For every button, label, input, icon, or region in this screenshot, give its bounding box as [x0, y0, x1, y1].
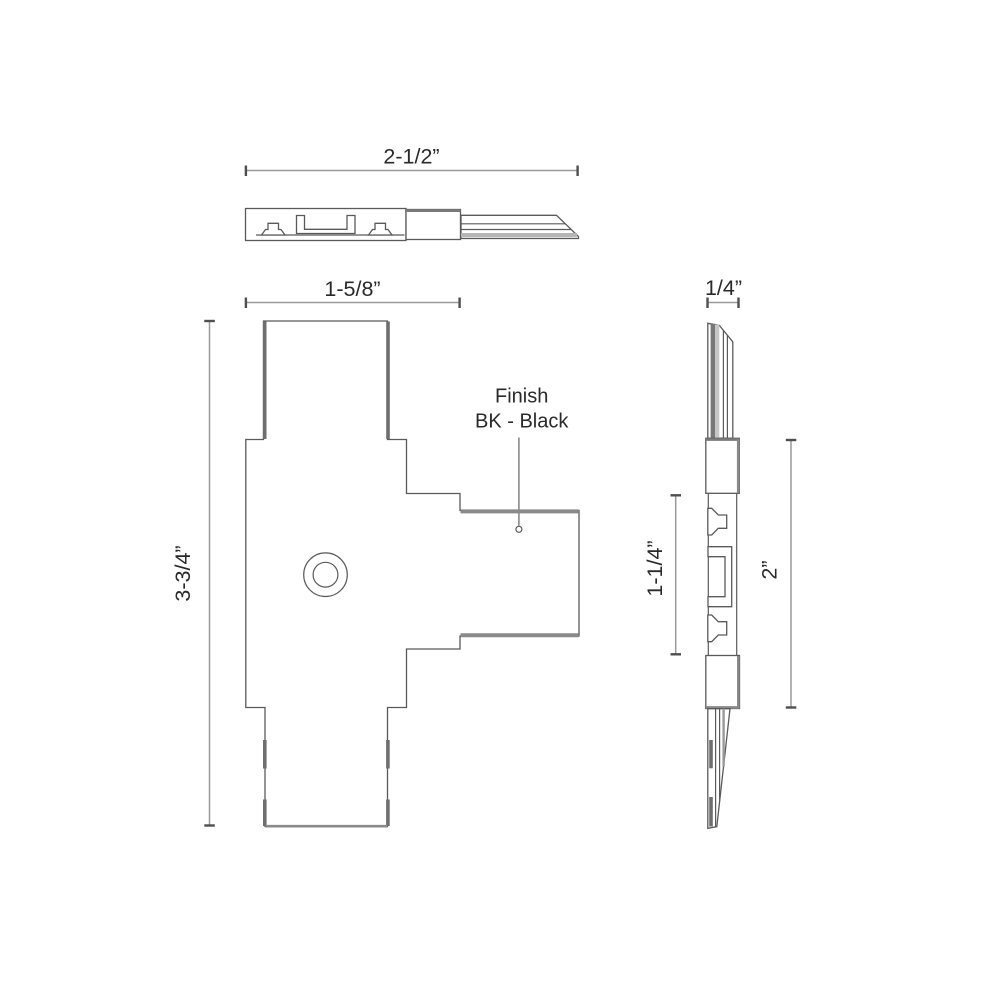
finish-note-line2: BK - Black	[475, 411, 569, 433]
dim-tick-bottom	[204, 824, 215, 826]
dim-front-height-label: 3-3/4”	[171, 545, 195, 601]
dim-tick-bottom	[786, 706, 797, 708]
top-view: 2-1/2”	[245, 145, 579, 241]
side-top-clip	[708, 508, 727, 535]
top-view-connector-block	[406, 210, 461, 240]
side-top-blade-dark-stripe	[711, 324, 715, 438]
side-channel	[708, 547, 732, 607]
drawing-canvas: 2-1/2” 1-5/8” 3-3/4”	[0, 0, 1000, 1000]
finish-note-line1: Finish	[495, 386, 548, 408]
dim-tick-top	[204, 320, 215, 322]
dim-top-width-label: 2-1/2”	[383, 145, 439, 169]
side-top-blade-light-stripe	[715, 325, 719, 439]
dim-front-height: 3-3/4”	[171, 320, 215, 827]
side-lower-block	[706, 656, 740, 709]
dim-side-inner-height: 1-1/4”	[643, 494, 681, 655]
dim-side-thickness: 1/4”	[705, 276, 742, 308]
leader-dot	[516, 526, 522, 532]
top-view-blade-band	[461, 233, 577, 237]
dim-tick-right	[576, 166, 578, 177]
side-upper-block	[706, 438, 740, 493]
dim-front-width-label: 1-5/8”	[324, 277, 380, 301]
dim-tick-left	[245, 298, 247, 309]
technical-drawing: 2-1/2” 1-5/8” 3-3/4”	[0, 0, 1000, 1000]
dim-tick-bottom	[671, 653, 682, 655]
side-view: 1/4” 1-1/4”	[643, 276, 796, 828]
dim-side-height-label: 2”	[758, 560, 782, 579]
dim-tick-right	[458, 298, 460, 309]
dim-tick-left	[245, 166, 247, 177]
dim-side-thickness-label: 1/4”	[705, 276, 742, 300]
dim-tick-top	[786, 439, 797, 441]
dim-side-height: 2”	[758, 439, 797, 709]
dim-front-width: 1-5/8”	[245, 277, 461, 308]
dim-side-inner-height-label: 1-1/4”	[643, 540, 667, 596]
side-bottom-clip	[708, 615, 727, 642]
dim-tick-top	[671, 494, 682, 496]
front-view: 1-5/8” 3-3/4” Finish BK - Black	[171, 277, 579, 827]
dim-top-width: 2-1/2”	[245, 145, 579, 177]
